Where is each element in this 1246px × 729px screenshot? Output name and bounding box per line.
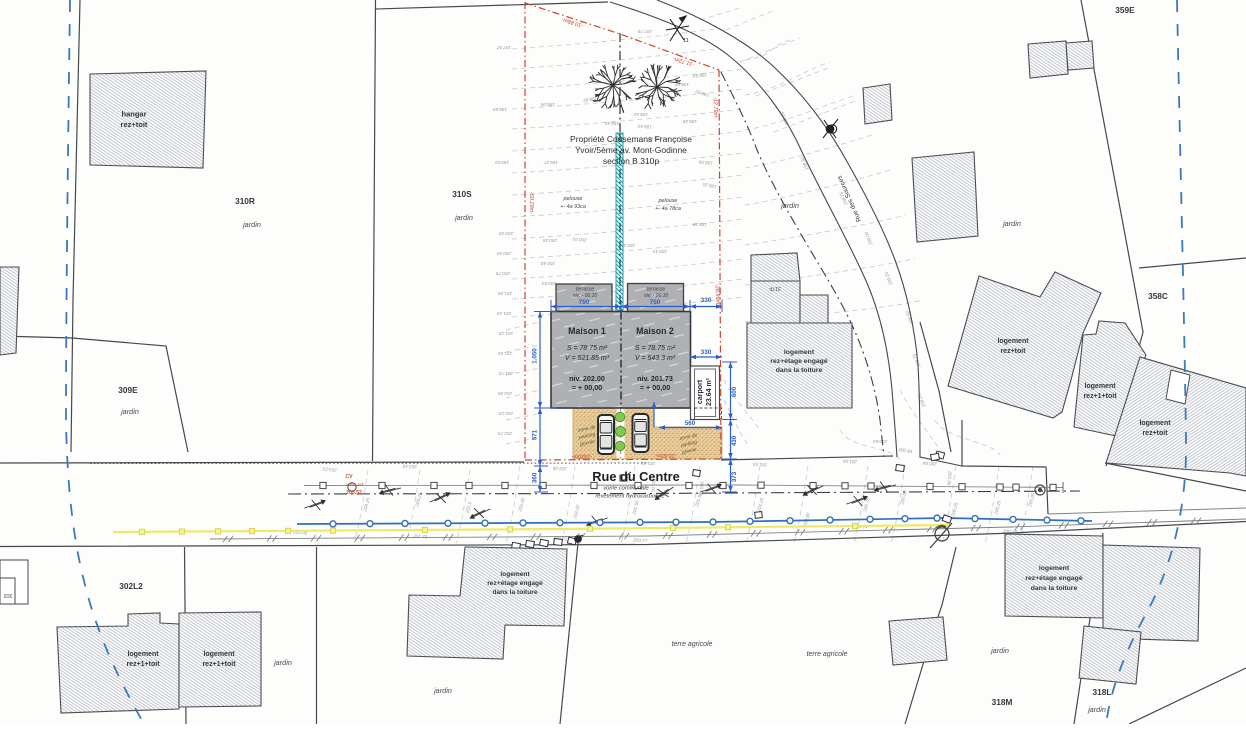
svg-text:200.75: 200.75 bbox=[496, 271, 511, 276]
svg-text:terrasse: terrasse bbox=[647, 287, 665, 293]
svg-text:niv. 202.00: niv. 202.00 bbox=[569, 374, 605, 383]
svg-text:logement: logement bbox=[784, 349, 815, 356]
svg-text:jardin: jardin bbox=[433, 686, 452, 695]
svg-text:logement: logement bbox=[1139, 420, 1171, 427]
svg-text:carport: carport bbox=[697, 379, 704, 404]
svg-text:198.06: 198.06 bbox=[541, 102, 555, 107]
svg-text:302L2: 302L2 bbox=[119, 581, 143, 591]
svg-text:358C: 358C bbox=[1148, 291, 1168, 301]
svg-text:23.64 m²: 23.64 m² bbox=[706, 377, 713, 406]
svg-text:330: 330 bbox=[701, 349, 712, 356]
svg-text:-50.29m-: -50.29m- bbox=[528, 192, 534, 215]
svg-text:pelouse: pelouse bbox=[563, 196, 583, 202]
svg-text:revêtement hydrocarbonné: revêtement hydrocarbonné bbox=[595, 494, 665, 500]
svg-text:rez+étage engagé: rez+étage engagé bbox=[1025, 575, 1082, 582]
svg-text:jardin: jardin bbox=[1002, 219, 1021, 228]
svg-text:750: 750 bbox=[650, 299, 661, 306]
svg-text:200.64: 200.64 bbox=[873, 439, 888, 444]
svg-text:197.97: 197.97 bbox=[497, 45, 511, 50]
svg-text:terre agricole: terre agricole bbox=[807, 651, 848, 658]
svg-text:560: 560 bbox=[685, 420, 696, 427]
svg-text:202.73: 202.73 bbox=[498, 431, 513, 436]
svg-text:302: 302 bbox=[3, 592, 12, 598]
svg-text:jardin: jardin bbox=[990, 646, 1009, 655]
svg-text:600: 600 bbox=[731, 386, 738, 397]
svg-text:terrasse: terrasse bbox=[576, 287, 594, 293]
svg-text:430: 430 bbox=[731, 435, 738, 446]
svg-text:+- 4a 78ca: +- 4a 78ca bbox=[655, 206, 681, 212]
svg-text:200.30: 200.30 bbox=[499, 231, 514, 236]
svg-text:200.43: 200.43 bbox=[653, 249, 668, 254]
svg-text:rez+étage engagé: rez+étage engagé bbox=[770, 358, 827, 365]
svg-text:jardin: jardin bbox=[120, 407, 139, 416]
svg-text:-28.99m-: -28.99m- bbox=[714, 284, 721, 307]
svg-text:V = 543.3 m³: V = 543.3 m³ bbox=[635, 355, 676, 362]
svg-text:199.37: 199.37 bbox=[544, 160, 558, 165]
svg-text:198.35: 198.35 bbox=[683, 119, 697, 124]
svg-text:200.45: 200.45 bbox=[543, 238, 558, 243]
svg-text:Maison 1: Maison 1 bbox=[568, 326, 606, 336]
svg-text:318M: 318M bbox=[992, 697, 1013, 707]
svg-text:dans la toiture: dans la toiture bbox=[1031, 585, 1078, 592]
svg-text:logement: logement bbox=[127, 651, 159, 658]
svg-text:571: 571 bbox=[532, 429, 539, 440]
svg-text:rez+1+toit: rez+1+toit bbox=[1083, 393, 1117, 400]
svg-text:200.54: 200.54 bbox=[542, 281, 557, 286]
svg-text:Yvoir/5ème av. Mont-Godinne: Yvoir/5ème av. Mont-Godinne bbox=[575, 145, 687, 155]
svg-text:199.52: 199.52 bbox=[495, 160, 509, 165]
svg-text:198.46: 198.46 bbox=[605, 121, 619, 126]
svg-text:+ niv. ref.: + niv. ref. bbox=[346, 482, 365, 487]
svg-text:198.85: 198.85 bbox=[493, 107, 507, 112]
svg-text:jardin: jardin bbox=[780, 201, 799, 210]
svg-text:rez+1+toit: rez+1+toit bbox=[126, 661, 160, 668]
svg-text:logement: logement bbox=[500, 571, 530, 578]
svg-text:hangar: hangar bbox=[121, 110, 146, 119]
svg-text:-10.60m-: -10.60m- bbox=[655, 452, 676, 458]
svg-text:202.00: 202.00 bbox=[498, 391, 513, 396]
svg-text:S = 78.75 m²: S = 78.75 m² bbox=[635, 345, 676, 352]
svg-text:V = 521.85 m³: V = 521.85 m³ bbox=[565, 355, 610, 362]
svg-text:360: 360 bbox=[532, 472, 539, 483]
svg-text:jardin: jardin bbox=[1087, 705, 1106, 714]
svg-text:CV: CV bbox=[345, 474, 353, 480]
svg-text:logement: logement bbox=[997, 338, 1029, 345]
svg-text:203.34: 203.34 bbox=[402, 464, 418, 470]
svg-text:rez+1+toit: rez+1+toit bbox=[202, 661, 236, 668]
svg-text:section B 310p: section B 310p bbox=[603, 156, 660, 166]
svg-text:310R: 310R bbox=[235, 196, 255, 206]
svg-text:199.38: 199.38 bbox=[693, 222, 707, 227]
svg-text:201.50: 201.50 bbox=[498, 351, 513, 356]
svg-text:330: 330 bbox=[701, 297, 712, 304]
svg-text:201.19: 201.19 bbox=[497, 311, 512, 316]
svg-text:373: 373 bbox=[731, 471, 738, 482]
svg-text:201.73: 201.73 bbox=[499, 371, 514, 376]
svg-text:750: 750 bbox=[579, 299, 590, 306]
svg-text:201.31: 201.31 bbox=[641, 461, 656, 466]
svg-text:rez+toit: rez+toit bbox=[1000, 348, 1026, 355]
svg-text:Propriété Coosemans Françoise: Propriété Coosemans Françoise bbox=[570, 134, 692, 144]
svg-text:202.06: 202.06 bbox=[552, 466, 568, 472]
svg-text:318L: 318L bbox=[1093, 687, 1112, 697]
svg-text:jardin: jardin bbox=[242, 220, 261, 229]
svg-text:voirie communale: voirie communale bbox=[603, 486, 649, 492]
svg-text:niv. 201.73: niv. 201.73 bbox=[637, 374, 673, 383]
svg-text:198.42: 198.42 bbox=[634, 112, 648, 117]
svg-text:201.25: 201.25 bbox=[499, 331, 514, 336]
svg-text:309E: 309E bbox=[118, 385, 138, 395]
svg-text:201.53: 201.53 bbox=[752, 462, 768, 468]
svg-text:201.00: 201.00 bbox=[498, 291, 513, 296]
svg-text:201.04: 201.04 bbox=[842, 459, 858, 465]
svg-text:+- 4a 93ca: +- 4a 93ca bbox=[560, 204, 586, 210]
svg-text:jardin: jardin bbox=[273, 658, 292, 667]
svg-text:200.40: 200.40 bbox=[497, 251, 512, 256]
svg-text:-12.79m-: -12.79m- bbox=[712, 97, 719, 120]
svg-text:202.23: 202.23 bbox=[499, 411, 514, 416]
svg-text:317F: 317F bbox=[769, 285, 781, 291]
svg-text:pelouse: pelouse bbox=[658, 198, 678, 204]
svg-text:rez+étage engagé: rez+étage engagé bbox=[487, 580, 543, 587]
svg-text:rez+toit: rez+toit bbox=[1142, 430, 1168, 437]
svg-text:310S: 310S bbox=[452, 189, 472, 199]
svg-text:S = 78.75 m²: S = 78.75 m² bbox=[567, 345, 608, 352]
svg-text:203.52: 203.52 bbox=[346, 490, 362, 496]
svg-text:11: 11 bbox=[683, 38, 689, 44]
svg-text:terre agricole: terre agricole bbox=[672, 641, 713, 648]
svg-text:Rue du Centre: Rue du Centre bbox=[592, 469, 679, 484]
svg-text:359E: 359E bbox=[1115, 5, 1135, 15]
svg-text:logement: logement bbox=[1039, 565, 1070, 572]
svg-text:-10l20m-: -10l20m- bbox=[572, 453, 593, 459]
svg-text:= + 00,00: = + 00,00 bbox=[572, 383, 602, 392]
svg-text:= + 00,00: = + 00,00 bbox=[640, 383, 670, 392]
svg-text:1.050: 1.050 bbox=[532, 348, 539, 364]
svg-text:200.48: 200.48 bbox=[541, 261, 556, 266]
svg-text:Maison 2: Maison 2 bbox=[636, 326, 674, 336]
svg-text:197.75: 197.75 bbox=[638, 29, 652, 34]
svg-text:logement: logement bbox=[203, 651, 235, 658]
svg-text:dans la toiture: dans la toiture bbox=[776, 367, 823, 374]
svg-text:dans la toiture: dans la toiture bbox=[492, 589, 537, 596]
svg-text:logement: logement bbox=[1084, 383, 1116, 390]
svg-text:200.94: 200.94 bbox=[922, 461, 938, 467]
svg-text:rez+toit: rez+toit bbox=[121, 120, 148, 129]
svg-text:jardin: jardin bbox=[454, 213, 473, 222]
